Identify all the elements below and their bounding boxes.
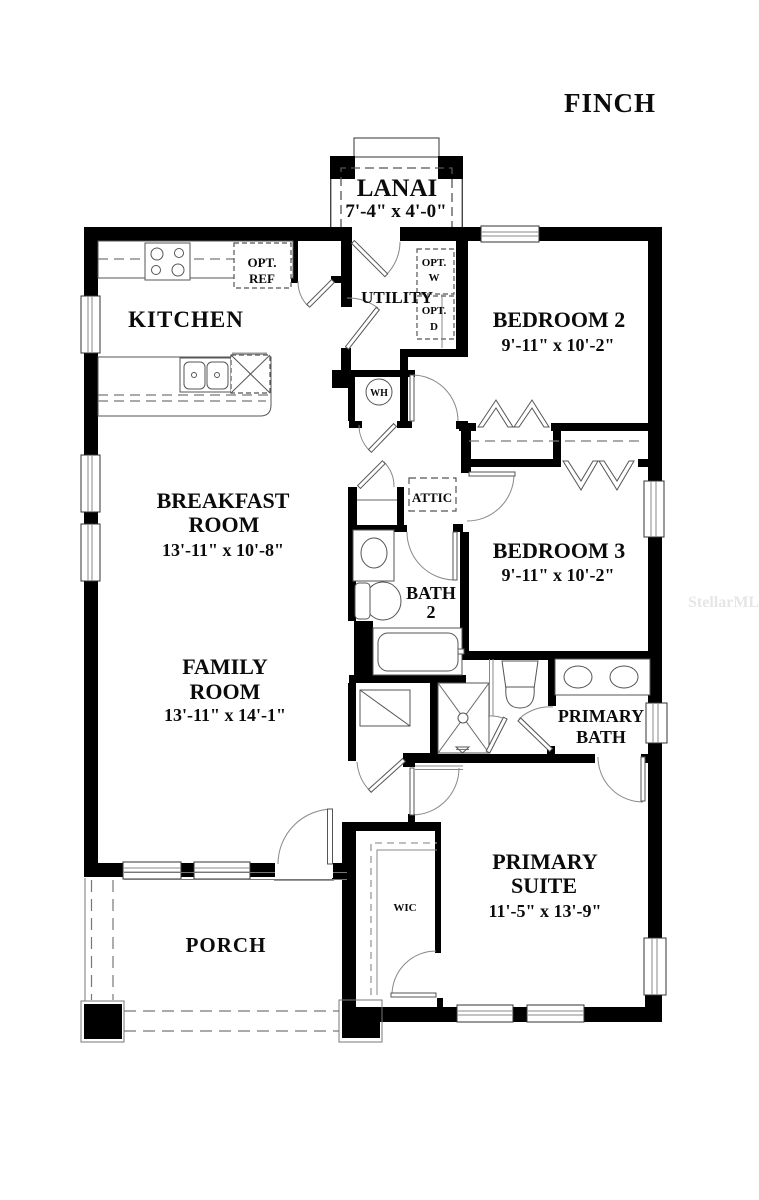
svg-text:ROOM: ROOM	[189, 512, 260, 537]
svg-text:BATH: BATH	[406, 583, 456, 603]
svg-text:StellarMLS: StellarMLS	[688, 594, 759, 611]
svg-text:REF: REF	[249, 271, 275, 286]
svg-text:OPT.: OPT.	[422, 257, 447, 269]
svg-text:ROOM: ROOM	[190, 679, 261, 704]
svg-text:FINCH: FINCH	[564, 88, 656, 118]
svg-text:D: D	[430, 321, 438, 333]
svg-text:2: 2	[427, 602, 436, 622]
svg-text:13'-11" x 10'-8": 13'-11" x 10'-8"	[162, 540, 284, 560]
svg-text:LANAI: LANAI	[357, 175, 438, 202]
svg-text:ATTIC: ATTIC	[412, 490, 452, 505]
svg-text:OPT.: OPT.	[422, 305, 447, 317]
svg-text:SUITE: SUITE	[511, 873, 577, 898]
svg-text:KITCHEN: KITCHEN	[128, 307, 244, 332]
svg-text:BEDROOM 3: BEDROOM 3	[493, 538, 626, 563]
svg-text:BREAKFAST: BREAKFAST	[157, 488, 290, 513]
svg-text:WIC: WIC	[393, 902, 416, 914]
svg-text:W: W	[429, 272, 440, 284]
svg-text:BEDROOM 2: BEDROOM 2	[493, 307, 626, 332]
svg-text:PRIMARY: PRIMARY	[492, 849, 598, 874]
svg-text:11'-5" x 13'-9": 11'-5" x 13'-9"	[489, 901, 602, 921]
svg-text:FAMILY: FAMILY	[182, 654, 268, 679]
svg-text:WH: WH	[370, 388, 388, 399]
svg-text:7'-4" x 4'-0": 7'-4" x 4'-0"	[345, 201, 446, 222]
svg-text:9'-11" x 10'-2": 9'-11" x 10'-2"	[502, 335, 615, 355]
svg-text:PORCH: PORCH	[186, 933, 267, 957]
svg-text:9'-11" x 10'-2": 9'-11" x 10'-2"	[502, 565, 615, 585]
svg-text:13'-11" x 14'-1": 13'-11" x 14'-1"	[164, 705, 286, 725]
svg-text:PRIMARY: PRIMARY	[558, 706, 644, 726]
svg-text:BATH: BATH	[576, 727, 626, 747]
svg-text:OPT.: OPT.	[247, 255, 276, 270]
